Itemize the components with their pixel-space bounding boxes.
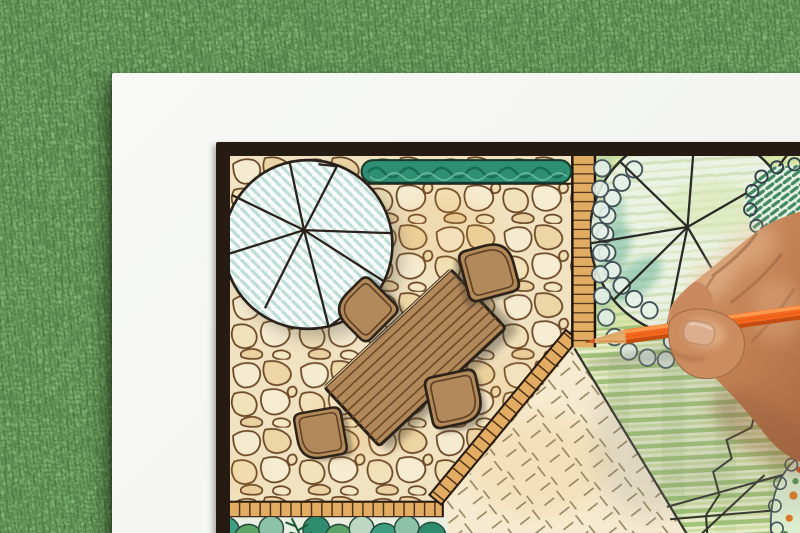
plan-frame-border [216,142,800,533]
plan-drawing-area [230,156,800,533]
boxwood-hedge [362,160,572,184]
photo-scene [0,0,800,533]
garden-plan-drawing [230,156,800,533]
perimeter-planting-bed [230,516,448,533]
